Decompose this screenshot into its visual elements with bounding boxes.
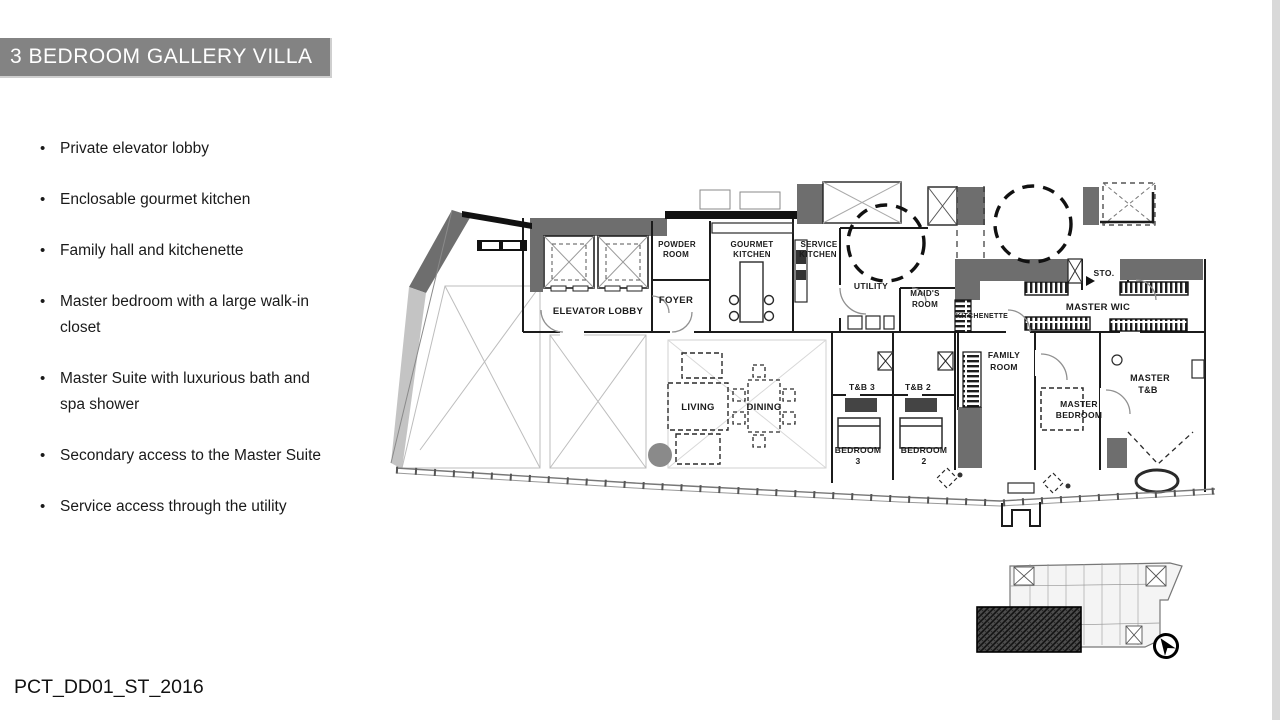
room-label-tb2: T&B 2 (905, 382, 931, 392)
elevator-shaft (544, 236, 594, 291)
feature-item: Enclosable gourmet kitchen (38, 187, 322, 213)
room-label-bedroom2: 2 (921, 456, 926, 466)
key-plan-unit-highlight (977, 607, 1081, 652)
feature-item: Master Suite with luxurious bath and spa… (38, 366, 322, 418)
room-label-service-kitchen: SERVICE (800, 240, 837, 249)
room-label-bedroom3: BEDROOM (835, 445, 882, 455)
room-label-gourmet-kitchen: GOURMET (731, 240, 774, 249)
room-label-storage: STO. (1094, 268, 1115, 278)
slanted-facade (391, 210, 471, 469)
footer-code: PCT_DD01_ST_2016 (14, 676, 204, 699)
deco-items (937, 468, 1070, 493)
room-label-service-kitchen: KITCHEN (799, 250, 837, 259)
room-label-family-room: ROOM (990, 362, 1018, 372)
feature-item: Master bedroom with a large walk-in clos… (38, 289, 322, 341)
curtain-wall (396, 468, 1215, 526)
slide: 3 BEDROOM GALLERY VILLA Private elevator… (0, 0, 1280, 720)
title-bar: 3 BEDROOM GALLERY VILLA (0, 38, 332, 78)
room-label-bedroom2: BEDROOM (901, 445, 948, 455)
feature-list: Private elevator lobby Enclosable gourme… (38, 136, 338, 545)
room-label-family-room: FAMILY (988, 350, 1020, 360)
feature-item: Private elevator lobby (38, 136, 322, 162)
room-label-utility: UTILITY (854, 281, 888, 291)
room-label-gourmet-kitchen: KITCHEN (733, 250, 771, 259)
floor-plan-drawing: ELEVATOR LOBBY FOYER POWDER ROOM GOURMET… (385, 165, 1235, 680)
kitchen-counter (712, 223, 793, 233)
feature-item: Service access through the utility (38, 494, 322, 520)
room-label-master-tb: T&B (1138, 385, 1158, 395)
room-label-maids-room: ROOM (912, 300, 938, 309)
floor-plan: ELEVATOR LOBBY FOYER POWDER ROOM GOURMET… (385, 165, 1235, 680)
callout-circle-service-access (995, 186, 1071, 262)
room-label-master-wic: MASTER WIC (1066, 302, 1130, 313)
feature-item: Secondary access to the Master Suite (38, 443, 322, 469)
kitchen-island (730, 262, 774, 322)
shower-glass (1128, 432, 1193, 464)
room-label-master-bedroom: BEDROOM (1056, 410, 1103, 420)
bedroom3-bed (838, 418, 880, 448)
room-label-living: LIVING (681, 402, 714, 413)
room-label-dining: DINING (746, 402, 781, 413)
room-label-bedroom3: 3 (855, 456, 860, 466)
room-label-powder-room: POWDER (658, 240, 696, 249)
room-label-master-bedroom: MASTER (1060, 399, 1098, 409)
room-label-maids-room: MAID'S (910, 289, 940, 298)
room-label-elevator-lobby: ELEVATOR LOBBY (553, 306, 644, 317)
elevator-shaft (598, 236, 648, 291)
page-title: 3 BEDROOM GALLERY VILLA (0, 45, 313, 69)
room-label-kitchenette: KITCHENETTE (956, 313, 1008, 320)
master-bed (1041, 388, 1083, 430)
room-label-tb3: T&B 3 (849, 382, 875, 392)
slide-edge-shadow (1272, 0, 1280, 720)
key-plan (977, 563, 1182, 652)
room-label-powder-room: ROOM (663, 250, 689, 259)
bathtub (1136, 470, 1178, 492)
utility-appliances (848, 316, 894, 329)
room-label-master-tb: MASTER (1130, 373, 1170, 383)
feature-item: Family hall and kitchenette (38, 238, 322, 264)
bedroom2-bed (900, 418, 942, 448)
room-label-foyer: FOYER (659, 295, 693, 306)
